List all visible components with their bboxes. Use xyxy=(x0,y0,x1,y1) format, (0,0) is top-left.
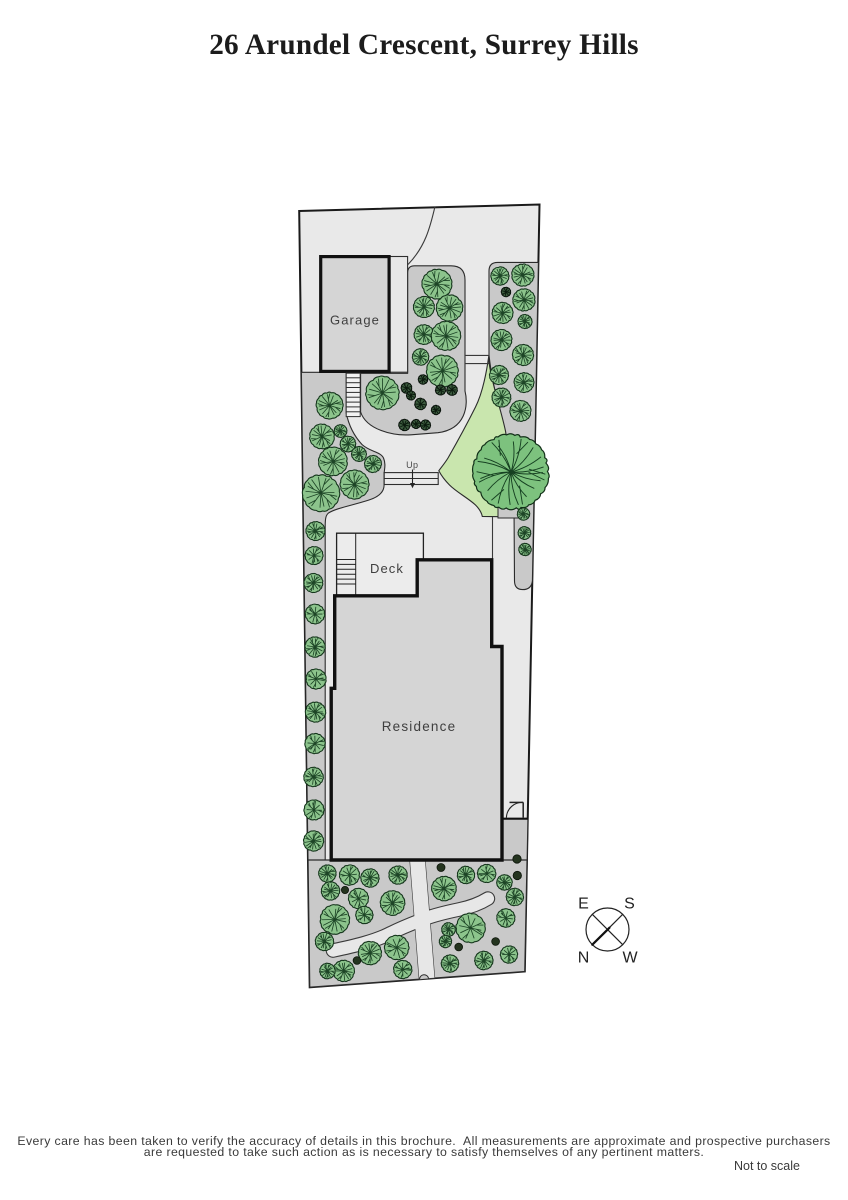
svg-text:W: W xyxy=(622,950,638,967)
svg-text:Garage: Garage xyxy=(330,313,380,328)
svg-text:N: N xyxy=(578,950,590,967)
svg-text:Up: Up xyxy=(406,460,418,470)
svg-text:E: E xyxy=(578,896,589,913)
svg-text:S: S xyxy=(624,896,635,913)
svg-text:Residence: Residence xyxy=(382,719,457,734)
svg-text:Deck: Deck xyxy=(370,561,404,576)
